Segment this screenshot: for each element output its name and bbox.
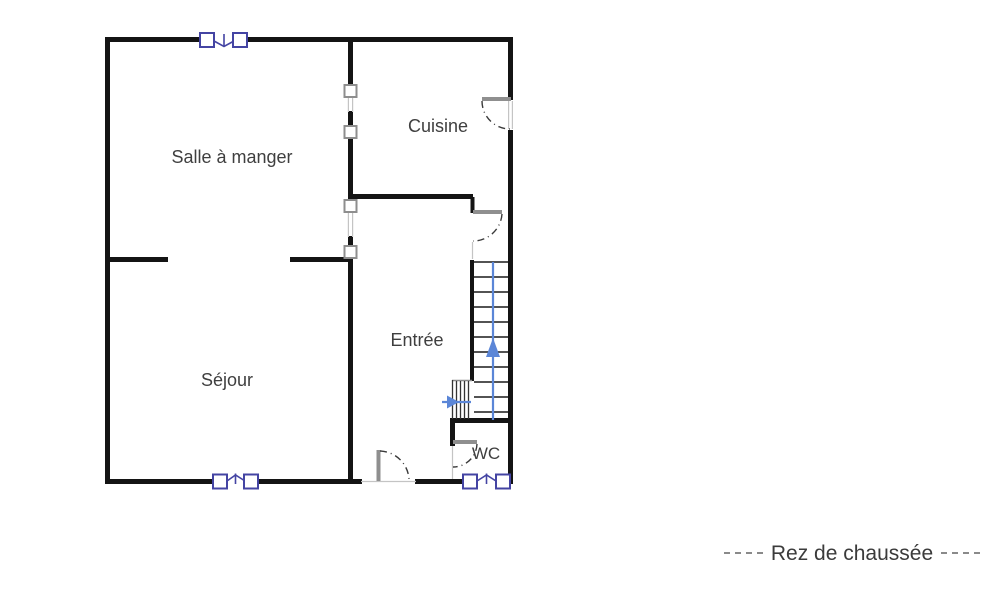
- stair-treads: [474, 262, 508, 412]
- wall-cap-marker: [345, 200, 357, 212]
- wall-cap-marker: [345, 85, 357, 97]
- door-swing-icon-entrance: [379, 450, 410, 481]
- staircase: [442, 260, 508, 420]
- stair-winder: [452, 380, 472, 419]
- room-label-salle-a-manger: Salle à manger: [171, 147, 292, 167]
- door-swing-icon-cuisine: [482, 99, 511, 129]
- window-icon-sejour: [213, 474, 258, 489]
- room-label-entree: Entrée: [390, 330, 443, 350]
- caption: Rez de chaussée: [724, 542, 984, 565]
- room-label-wc: WC: [472, 444, 500, 463]
- window-icon-salle-a-manger: [200, 33, 247, 47]
- wall-cap-marker: [345, 126, 357, 138]
- wall-cap-marker: [345, 246, 357, 258]
- door-swing-icon-stairs: [473, 212, 502, 241]
- room-label-cuisine: Cuisine: [408, 116, 468, 136]
- caption-label: Rez de chaussée: [771, 542, 933, 565]
- wall-opening-lines: [348, 96, 512, 482]
- floor-plan-drawing: Salle à manger Cuisine Séjour Entrée WC …: [0, 0, 1000, 603]
- room-label-sejour: Séjour: [201, 370, 253, 390]
- floor-plan-canvas: Salle à manger Cuisine Séjour Entrée WC …: [0, 0, 1000, 603]
- interior-walls: [105, 37, 513, 484]
- window-icon-wc: [463, 474, 510, 489]
